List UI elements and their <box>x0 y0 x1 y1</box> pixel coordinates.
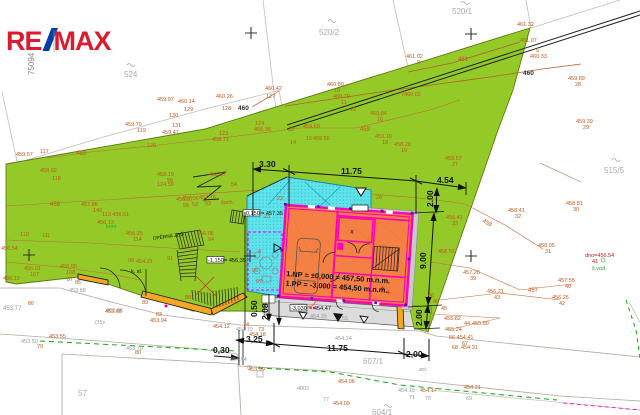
svg-text:459: 459 <box>360 127 371 133</box>
svg-text:70: 70 <box>425 396 431 402</box>
svg-text:458.71: 458.71 <box>212 137 229 143</box>
svg-text:-0,150: -0,150 <box>244 211 260 217</box>
svg-text:69: 69 <box>466 396 472 402</box>
svg-text:2.08: 2.08 <box>260 303 270 320</box>
svg-text:520/2: 520/2 <box>319 28 340 37</box>
svg-text:460: 460 <box>238 105 249 112</box>
svg-text:43: 43 <box>494 295 500 301</box>
svg-text:453.94: 453.94 <box>150 318 167 324</box>
svg-text:28: 28 <box>575 82 581 88</box>
svg-text:16: 16 <box>377 117 383 123</box>
svg-text:kore: kore <box>106 224 117 230</box>
svg-text:97: 97 <box>256 279 262 285</box>
svg-text:461: 461 <box>458 57 469 63</box>
svg-text:458.02: 458.02 <box>40 168 57 174</box>
svg-text:44: 44 <box>464 321 470 327</box>
svg-text:515/5: 515/5 <box>604 166 625 175</box>
svg-text:4002: 4002 <box>297 386 309 392</box>
svg-text:453.77: 453.77 <box>3 306 22 312</box>
svg-text:607/1: 607/1 <box>363 357 384 366</box>
svg-text:453.88: 453.88 <box>69 288 86 294</box>
svg-text:520/1: 520/1 <box>452 7 473 16</box>
svg-text:453.55: 453.55 <box>49 334 66 340</box>
svg-text:11: 11 <box>341 100 347 106</box>
svg-text:75094: 75094 <box>27 52 36 75</box>
svg-text:454.18: 454.18 <box>249 332 266 338</box>
svg-text:5: 5 <box>536 48 539 54</box>
svg-text:41: 41 <box>592 259 598 265</box>
svg-text:19: 19 <box>401 148 407 154</box>
svg-text:459.69: 459.69 <box>303 124 320 130</box>
svg-text:454.06: 454.06 <box>338 379 355 385</box>
svg-text:454.21: 454.21 <box>464 385 481 391</box>
svg-text:455.80: 455.80 <box>472 321 489 327</box>
svg-text:49: 49 <box>433 299 439 305</box>
svg-text:31: 31 <box>545 249 551 255</box>
svg-text:11.75: 11.75 <box>327 343 348 353</box>
svg-text:129: 129 <box>184 107 193 113</box>
svg-text:453.50: 453.50 <box>21 339 38 345</box>
svg-text:454.12: 454.12 <box>213 324 230 330</box>
svg-text:110: 110 <box>20 232 29 238</box>
svg-text:455.82: 455.82 <box>444 316 461 322</box>
svg-text:30: 30 <box>573 207 579 213</box>
svg-text:96: 96 <box>252 268 258 274</box>
svg-text:454.39: 454.39 <box>310 314 327 320</box>
svg-text:454.04: 454.04 <box>230 357 247 363</box>
svg-text:89: 89 <box>142 300 148 306</box>
svg-text:454.24: 454.24 <box>335 336 352 342</box>
svg-text:0,30: 0,30 <box>213 345 230 355</box>
svg-text:MAX: MAX <box>54 26 112 56</box>
svg-text:79: 79 <box>37 344 43 350</box>
svg-text:26: 26 <box>376 195 382 201</box>
svg-text:524: 524 <box>124 70 138 79</box>
svg-text:55: 55 <box>183 203 189 209</box>
svg-text:456.19: 456.19 <box>3 276 20 282</box>
svg-text:-1,150: -1,150 <box>208 258 224 264</box>
svg-text:458.53: 458.53 <box>438 249 455 255</box>
svg-text:458: 458 <box>50 202 61 208</box>
svg-text:459.56: 459.56 <box>313 136 330 142</box>
svg-text:108: 108 <box>66 270 75 276</box>
svg-text:9: 9 <box>417 60 420 66</box>
svg-text:455.24: 455.24 <box>445 327 462 333</box>
svg-text:128: 128 <box>222 106 231 112</box>
svg-text:85: 85 <box>75 280 81 286</box>
svg-text:55: 55 <box>342 316 348 322</box>
svg-text:124.56: 124.56 <box>157 182 174 188</box>
svg-text:3.30: 3.30 <box>259 159 276 169</box>
svg-text:127: 127 <box>266 94 275 100</box>
svg-text:2.00: 2.00 <box>425 190 435 207</box>
svg-text:13: 13 <box>288 127 294 133</box>
svg-text:118: 118 <box>52 176 61 182</box>
svg-text:80: 80 <box>135 350 141 356</box>
svg-text:4.54: 4.54 <box>437 175 454 185</box>
svg-text:461.07: 461.07 <box>520 38 537 44</box>
svg-text:459: 459 <box>76 151 87 157</box>
svg-text:23: 23 <box>264 214 270 220</box>
svg-text:14: 14 <box>290 140 296 146</box>
svg-text:45: 45 <box>441 306 447 312</box>
svg-text:22: 22 <box>277 196 283 202</box>
svg-text:454.21: 454.21 <box>136 259 153 265</box>
svg-text:33: 33 <box>452 221 458 227</box>
svg-text:15: 15 <box>306 136 312 142</box>
svg-text:460.42: 460.42 <box>265 86 282 92</box>
svg-text:53: 53 <box>205 201 211 207</box>
svg-text:RE: RE <box>6 26 42 56</box>
svg-text:7460.02: 7460.02 <box>401 92 421 98</box>
svg-text:130: 130 <box>169 113 178 119</box>
svg-text:454.19: 454.19 <box>398 388 415 394</box>
svg-text:454.31: 454.31 <box>461 345 478 351</box>
svg-text:91: 91 <box>167 256 173 262</box>
svg-text:459.57: 459.57 <box>16 152 33 158</box>
svg-text:29: 29 <box>583 125 589 131</box>
svg-text:453.88: 453.88 <box>105 309 122 315</box>
svg-text:119: 119 <box>137 128 146 134</box>
svg-text:604/1: 604/1 <box>372 408 393 415</box>
svg-text:460.14: 460.14 <box>178 99 195 105</box>
svg-text:39: 39 <box>470 276 476 282</box>
svg-text:461.32: 461.32 <box>517 22 534 28</box>
svg-text:146: 146 <box>93 208 102 214</box>
svg-text:114: 114 <box>133 237 142 243</box>
svg-text:86: 86 <box>28 301 34 307</box>
svg-text:12: 12 <box>350 107 356 113</box>
svg-text:-3,030: -3,030 <box>291 306 307 312</box>
svg-text:š.vod.: š.vod. <box>592 266 607 272</box>
svg-text:(35)¹: (35)¹ <box>95 320 106 326</box>
svg-text:52: 52 <box>192 202 198 208</box>
svg-text:= 454,47: = 454,47 <box>309 306 331 312</box>
svg-text:68: 68 <box>452 345 458 351</box>
svg-text:0.50: 0.50 <box>249 300 259 317</box>
svg-text:k. sl.: k. sl. <box>131 269 143 275</box>
svg-text:458.27: 458.27 <box>209 172 226 178</box>
svg-text:4: 4 <box>258 249 261 255</box>
svg-text:94: 94 <box>208 237 214 243</box>
svg-text:107: 107 <box>30 272 39 278</box>
svg-text:42: 42 <box>559 301 565 307</box>
svg-text:40: 40 <box>565 284 571 290</box>
svg-text:32: 32 <box>515 214 521 220</box>
svg-text:460.33: 460.33 <box>530 54 547 60</box>
svg-text:120: 120 <box>147 143 156 149</box>
svg-text:459.47: 459.47 <box>162 130 179 136</box>
svg-text:27: 27 <box>452 162 458 168</box>
svg-text:11.75: 11.75 <box>341 166 362 176</box>
svg-text:57: 57 <box>78 389 87 398</box>
svg-text:90: 90 <box>128 258 134 264</box>
svg-text:18: 18 <box>382 140 388 146</box>
svg-text:77: 77 <box>323 397 329 403</box>
svg-text:111: 111 <box>42 233 50 239</box>
svg-text:9.00: 9.00 <box>418 252 428 269</box>
svg-text:71: 71 <box>409 395 415 401</box>
svg-text:2.00: 2.00 <box>414 309 424 326</box>
svg-text:454.17: 454.17 <box>420 388 437 394</box>
svg-text:453.99: 453.99 <box>248 367 265 373</box>
svg-text:= 456,35: = 456,35 <box>224 258 246 264</box>
svg-text:454.09: 454.09 <box>333 401 350 407</box>
svg-text:113 456.61: 113 456.61 <box>102 212 129 218</box>
svg-text:458.36: 458.36 <box>254 127 271 133</box>
svg-text:øst.: øst. <box>419 367 427 373</box>
svg-text:šach.: šach. <box>221 200 235 206</box>
svg-text:117: 117 <box>40 149 49 155</box>
svg-text:460.26: 460.26 <box>216 94 233 100</box>
svg-text:87: 87 <box>67 277 73 283</box>
svg-text:88: 88 <box>185 295 191 301</box>
svg-text:456.54: 456.54 <box>1 246 18 252</box>
svg-text:459.97: 459.97 <box>157 97 174 103</box>
svg-text:2,00: 2,00 <box>406 349 423 359</box>
svg-text:dno=456.54: dno=456.54 <box>585 253 614 259</box>
svg-text:131: 131 <box>172 123 181 129</box>
svg-text:54: 54 <box>231 182 237 188</box>
svg-text:457: 457 <box>528 288 539 294</box>
svg-text:461.02: 461.02 <box>406 54 423 60</box>
svg-text:460: 460 <box>523 70 534 77</box>
